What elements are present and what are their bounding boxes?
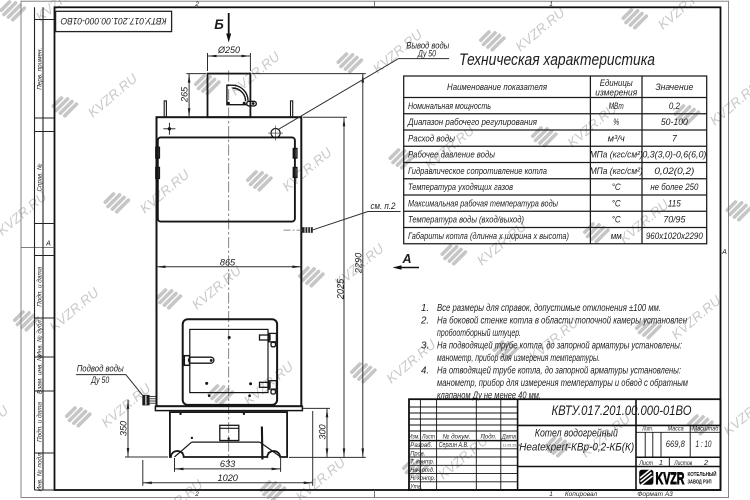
svg-text:1: 1 — [549, 1, 553, 8]
svg-text:2: 2 — [703, 458, 709, 467]
svg-text:4.: 4. — [421, 366, 429, 377]
svg-text:Габариты котла (длинна х ширин: Габариты котла (длинна х ширина х высота… — [408, 231, 569, 241]
svg-text:Лит.: Лит. — [641, 425, 653, 432]
svg-text:1: 1 — [549, 491, 553, 498]
svg-text:115: 115 — [668, 198, 682, 208]
svg-text:Изм.: Изм. — [409, 434, 420, 441]
svg-text:2.: 2. — [420, 316, 429, 327]
svg-text:11.05.2024: 11.05.2024 — [503, 444, 521, 448]
svg-text:Инв. № подл.: Инв. № подл. — [35, 452, 43, 492]
svg-text:Ду 50: Ду 50 — [90, 375, 109, 386]
svg-text:не более 250: не более 250 — [650, 182, 698, 192]
svg-text:0,2: 0,2 — [669, 101, 680, 111]
svg-text:Пров.: Пров. — [410, 450, 425, 457]
svg-text:Все размеры для справок, допус: Все размеры для справок, допустимые откл… — [437, 303, 661, 314]
svg-text:265: 265 — [180, 86, 190, 103]
svg-text:KVZR: KVZR — [656, 469, 685, 488]
svg-text:Техническая характеристика: Техническая характеристика — [459, 50, 655, 69]
svg-text:2025: 2025 — [336, 278, 346, 300]
svg-text:Расход воды: Расход воды — [408, 133, 455, 143]
svg-text:Гидравлическое сопротивление к: Гидравлическое сопротивление котла — [408, 166, 547, 176]
svg-text:А: А — [721, 249, 727, 256]
svg-text:КОТЕЛЬНЫЙ: КОТЕЛЬНЫЙ — [688, 470, 717, 478]
svg-text:0,02(0,2): 0,02(0,2) — [654, 166, 694, 176]
svg-text:манометр, прибор для измерения: манометр, прибор для измерения температу… — [437, 353, 600, 364]
svg-text:Ø250: Ø250 — [217, 45, 241, 55]
svg-text:350: 350 — [118, 420, 128, 436]
svg-text:Перв. примен.: Перв. примен. — [36, 48, 43, 90]
svg-text:м³/ч: м³/ч — [608, 133, 625, 143]
svg-text:КВТУ.017.201.00.000-01ВО: КВТУ.017.201.00.000-01ВО — [552, 403, 692, 418]
svg-text:Формат А3: Формат А3 — [637, 491, 673, 498]
svg-text:Н. контр.: Н. контр. — [410, 475, 435, 482]
svg-text:Единицы: Единицы — [600, 78, 633, 88]
svg-text:Подп.: Подп. — [481, 433, 497, 441]
svg-text:На отводящей трубе котла, до з: На отводящей трубе котла, до запорной ар… — [437, 366, 681, 377]
svg-text:Номинальная мощность: Номинальная мощность — [408, 101, 491, 111]
svg-text:Утв.: Утв. — [409, 483, 422, 490]
svg-text:Б: Б — [214, 17, 224, 32]
svg-text:%: % — [613, 117, 619, 127]
svg-text:Нач.отд.: Нач.отд. — [410, 466, 434, 474]
svg-text:633: 633 — [220, 459, 236, 469]
svg-text:Дата: Дата — [501, 434, 516, 441]
svg-text:пробоотборный штуцер.: пробоотборный штуцер. — [437, 328, 521, 339]
svg-text:см. п.2: см. п.2 — [371, 201, 397, 212]
svg-text:°С: °С — [612, 215, 621, 225]
svg-text:На подводящей трубе котла, до: На подводящей трубе котла, до запорной а… — [437, 341, 682, 352]
svg-text:Инв. № дубл.: Инв. № дубл. — [35, 319, 43, 357]
svg-text:50-100: 50-100 — [661, 117, 688, 127]
svg-text:Значение: Значение — [655, 82, 693, 92]
svg-text:Масса: Масса — [668, 425, 684, 432]
svg-text:Масштаб: Масштаб — [692, 424, 718, 432]
svg-text:МПа (кгс/см²): МПа (кгс/см²) — [590, 150, 643, 160]
svg-text:1020: 1020 — [217, 473, 238, 483]
svg-text:Лист: Лист — [421, 434, 435, 441]
svg-text:Сергин А.В.: Сергин А.В. — [439, 442, 469, 449]
svg-text:1 : 10: 1 : 10 — [696, 439, 712, 449]
svg-text:1.: 1. — [421, 303, 429, 314]
svg-text:А: А — [401, 252, 411, 266]
svg-text:МПа (кгс/см²): МПа (кгс/см²) — [590, 166, 643, 176]
svg-text:Лист: Лист — [638, 460, 653, 467]
svg-text:МВт: МВт — [609, 101, 624, 111]
svg-text:960х1020х2290: 960х1020х2290 — [646, 231, 703, 241]
svg-text:№ докум.: № докум. — [443, 433, 471, 441]
svg-text:Рабочее давление воды: Рабочее давление воды — [408, 150, 495, 160]
svg-text:Листов: Листов — [673, 460, 692, 467]
svg-text:2: 2 — [194, 491, 199, 498]
svg-text:Котел водогрейный: Котел водогрейный — [535, 428, 618, 440]
svg-text:А: А — [45, 241, 51, 248]
svg-text:Подвод воды: Подвод воды — [77, 364, 124, 375]
svg-text:Максимальная рабочая температу: Максимальная рабочая температура воды — [408, 198, 558, 208]
svg-text:Ду 50: Ду 50 — [417, 49, 436, 60]
svg-text:669,8: 669,8 — [666, 439, 685, 449]
svg-text:Подп. и дата: Подп. и дата — [35, 266, 43, 306]
svg-text:300: 300 — [317, 423, 327, 439]
svg-text:Температура воды (вход/выход): Температура воды (вход/выход) — [408, 215, 524, 225]
svg-text:ЗАВОД РЭП: ЗАВОД РЭП — [688, 480, 712, 486]
svg-text:0,3(3,0)-0,6(6,0): 0,3(3,0)-0,6(6,0) — [642, 150, 706, 160]
svg-text:На боковой стенке котла в обла: На боковой стенке котла в области топочн… — [437, 316, 688, 327]
svg-text:Т. контр.: Т. контр. — [410, 459, 434, 466]
svg-text:Heatexpert-КВр-0,2-КБ(К): Heatexpert-КВр-0,2-КБ(К) — [519, 442, 634, 454]
svg-text:3.: 3. — [421, 341, 429, 352]
svg-text:КВТУ.017.201.00.000-01ВО: КВТУ.017.201.00.000-01ВО — [60, 15, 167, 26]
svg-text:мм: мм — [611, 231, 622, 241]
svg-text:Температура уходящих газов: Температура уходящих газов — [408, 182, 513, 192]
svg-text:70/95: 70/95 — [663, 215, 686, 225]
svg-text:манометр, прибор для измерения: манометр, прибор для измерения температу… — [437, 378, 688, 389]
svg-text:Диапазон рабочего регулировани: Диапазон рабочего регулирования — [407, 117, 537, 127]
svg-text:Взам. инв. №: Взам. инв. № — [36, 354, 43, 394]
svg-text:Разраб.: Разраб. — [410, 441, 432, 449]
svg-text:2290: 2290 — [354, 252, 364, 274]
svg-text:°С: °С — [612, 198, 621, 208]
svg-text:2: 2 — [194, 1, 199, 8]
svg-text:Наименование показателя: Наименование показателя — [447, 82, 547, 92]
svg-text:865: 865 — [220, 257, 236, 267]
svg-text:°С: °С — [612, 182, 621, 192]
svg-text:Подп. и дата: Подп. и дата — [35, 402, 43, 442]
svg-text:измерения: измерения — [595, 88, 637, 98]
svg-text:Справ. №: Справ. № — [36, 163, 43, 191]
svg-text:1: 1 — [659, 458, 663, 467]
svg-text:Копировал: Копировал — [565, 491, 598, 498]
